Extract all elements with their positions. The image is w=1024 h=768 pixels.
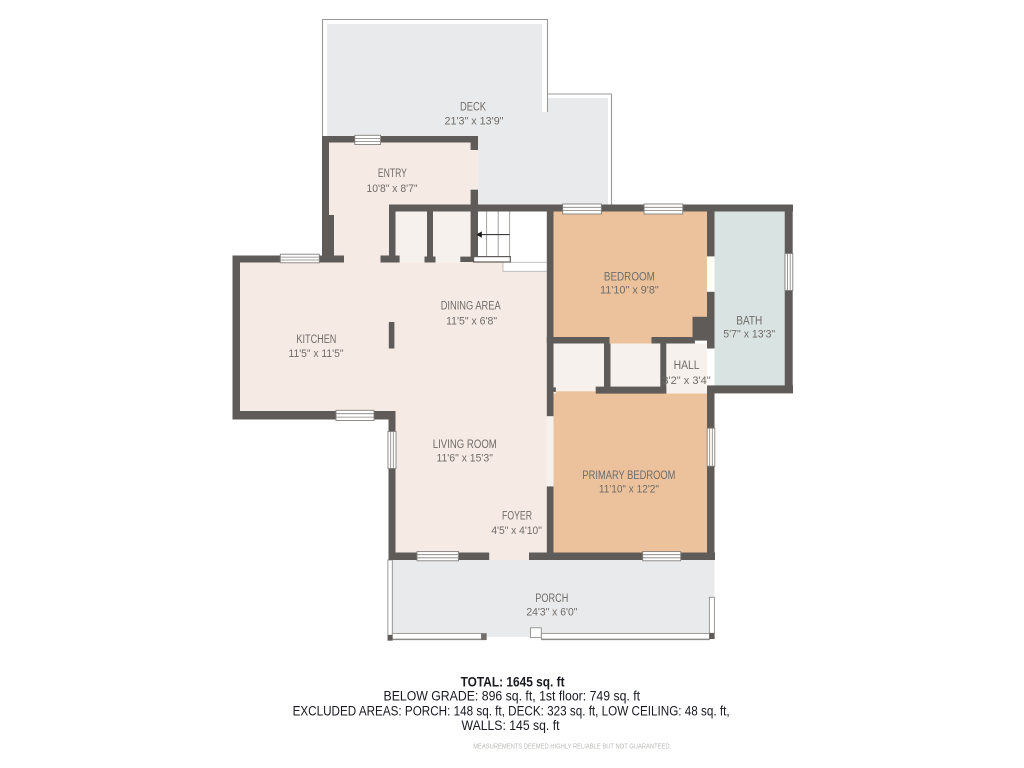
svg-text:4'5" x 4'10": 4'5" x 4'10": [491, 525, 542, 537]
svg-text:3'2" x 3'4": 3'2" x 3'4": [662, 375, 710, 387]
svg-text:EXCLUDED AREAS: PORCH: 148 sq.: EXCLUDED AREAS: PORCH: 148 sq. ft, DECK:…: [293, 704, 730, 719]
svg-text:DINING AREA: DINING AREA: [441, 301, 501, 313]
svg-text:24'3" x 6'0": 24'3" x 6'0": [526, 606, 577, 618]
svg-text:LIVING ROOM: LIVING ROOM: [433, 439, 497, 451]
svg-text:11'5" x 6'8": 11'5" x 6'8": [446, 315, 497, 327]
svg-text:BEDROOM: BEDROOM: [604, 271, 655, 283]
svg-text:ENTRY: ENTRY: [378, 168, 407, 180]
svg-text:MEASUREMENTS DEEMED HIGHLY REL: MEASUREMENTS DEEMED HIGHLY RELIABLE BUT …: [473, 742, 671, 751]
svg-text:5'7" x 13'3": 5'7" x 13'3": [723, 329, 775, 341]
svg-text:BELOW GRADE: 896 sq. ft, 1st f: BELOW GRADE: 896 sq. ft, 1st floor: 749 …: [384, 689, 641, 704]
svg-text:DECK: DECK: [460, 102, 486, 114]
svg-text:WALLS: 145 sq. ft: WALLS: 145 sq. ft: [462, 718, 560, 733]
svg-text:11'6" x 15'3": 11'6" x 15'3": [436, 453, 493, 465]
svg-text:11'10" x 9'8": 11'10" x 9'8": [600, 285, 659, 297]
svg-text:HALL: HALL: [674, 360, 701, 372]
svg-text:11'5" x 11'5": 11'5" x 11'5": [289, 348, 344, 360]
svg-text:10'8" x 8'7": 10'8" x 8'7": [367, 183, 418, 195]
svg-text:BATH: BATH: [736, 315, 762, 327]
svg-text:FOYER: FOYER: [502, 511, 532, 523]
svg-text:TOTAL: 1645 sq. ft: TOTAL: 1645 sq. ft: [461, 674, 565, 690]
svg-text:11'10" x 12'2": 11'10" x 12'2": [599, 484, 659, 496]
svg-text:PRIMARY BEDROOM: PRIMARY BEDROOM: [582, 470, 675, 482]
svg-text:KITCHEN: KITCHEN: [296, 334, 336, 346]
svg-text:21'3" x 13'9": 21'3" x 13'9": [445, 115, 504, 127]
svg-text:PORCH: PORCH: [535, 593, 568, 605]
